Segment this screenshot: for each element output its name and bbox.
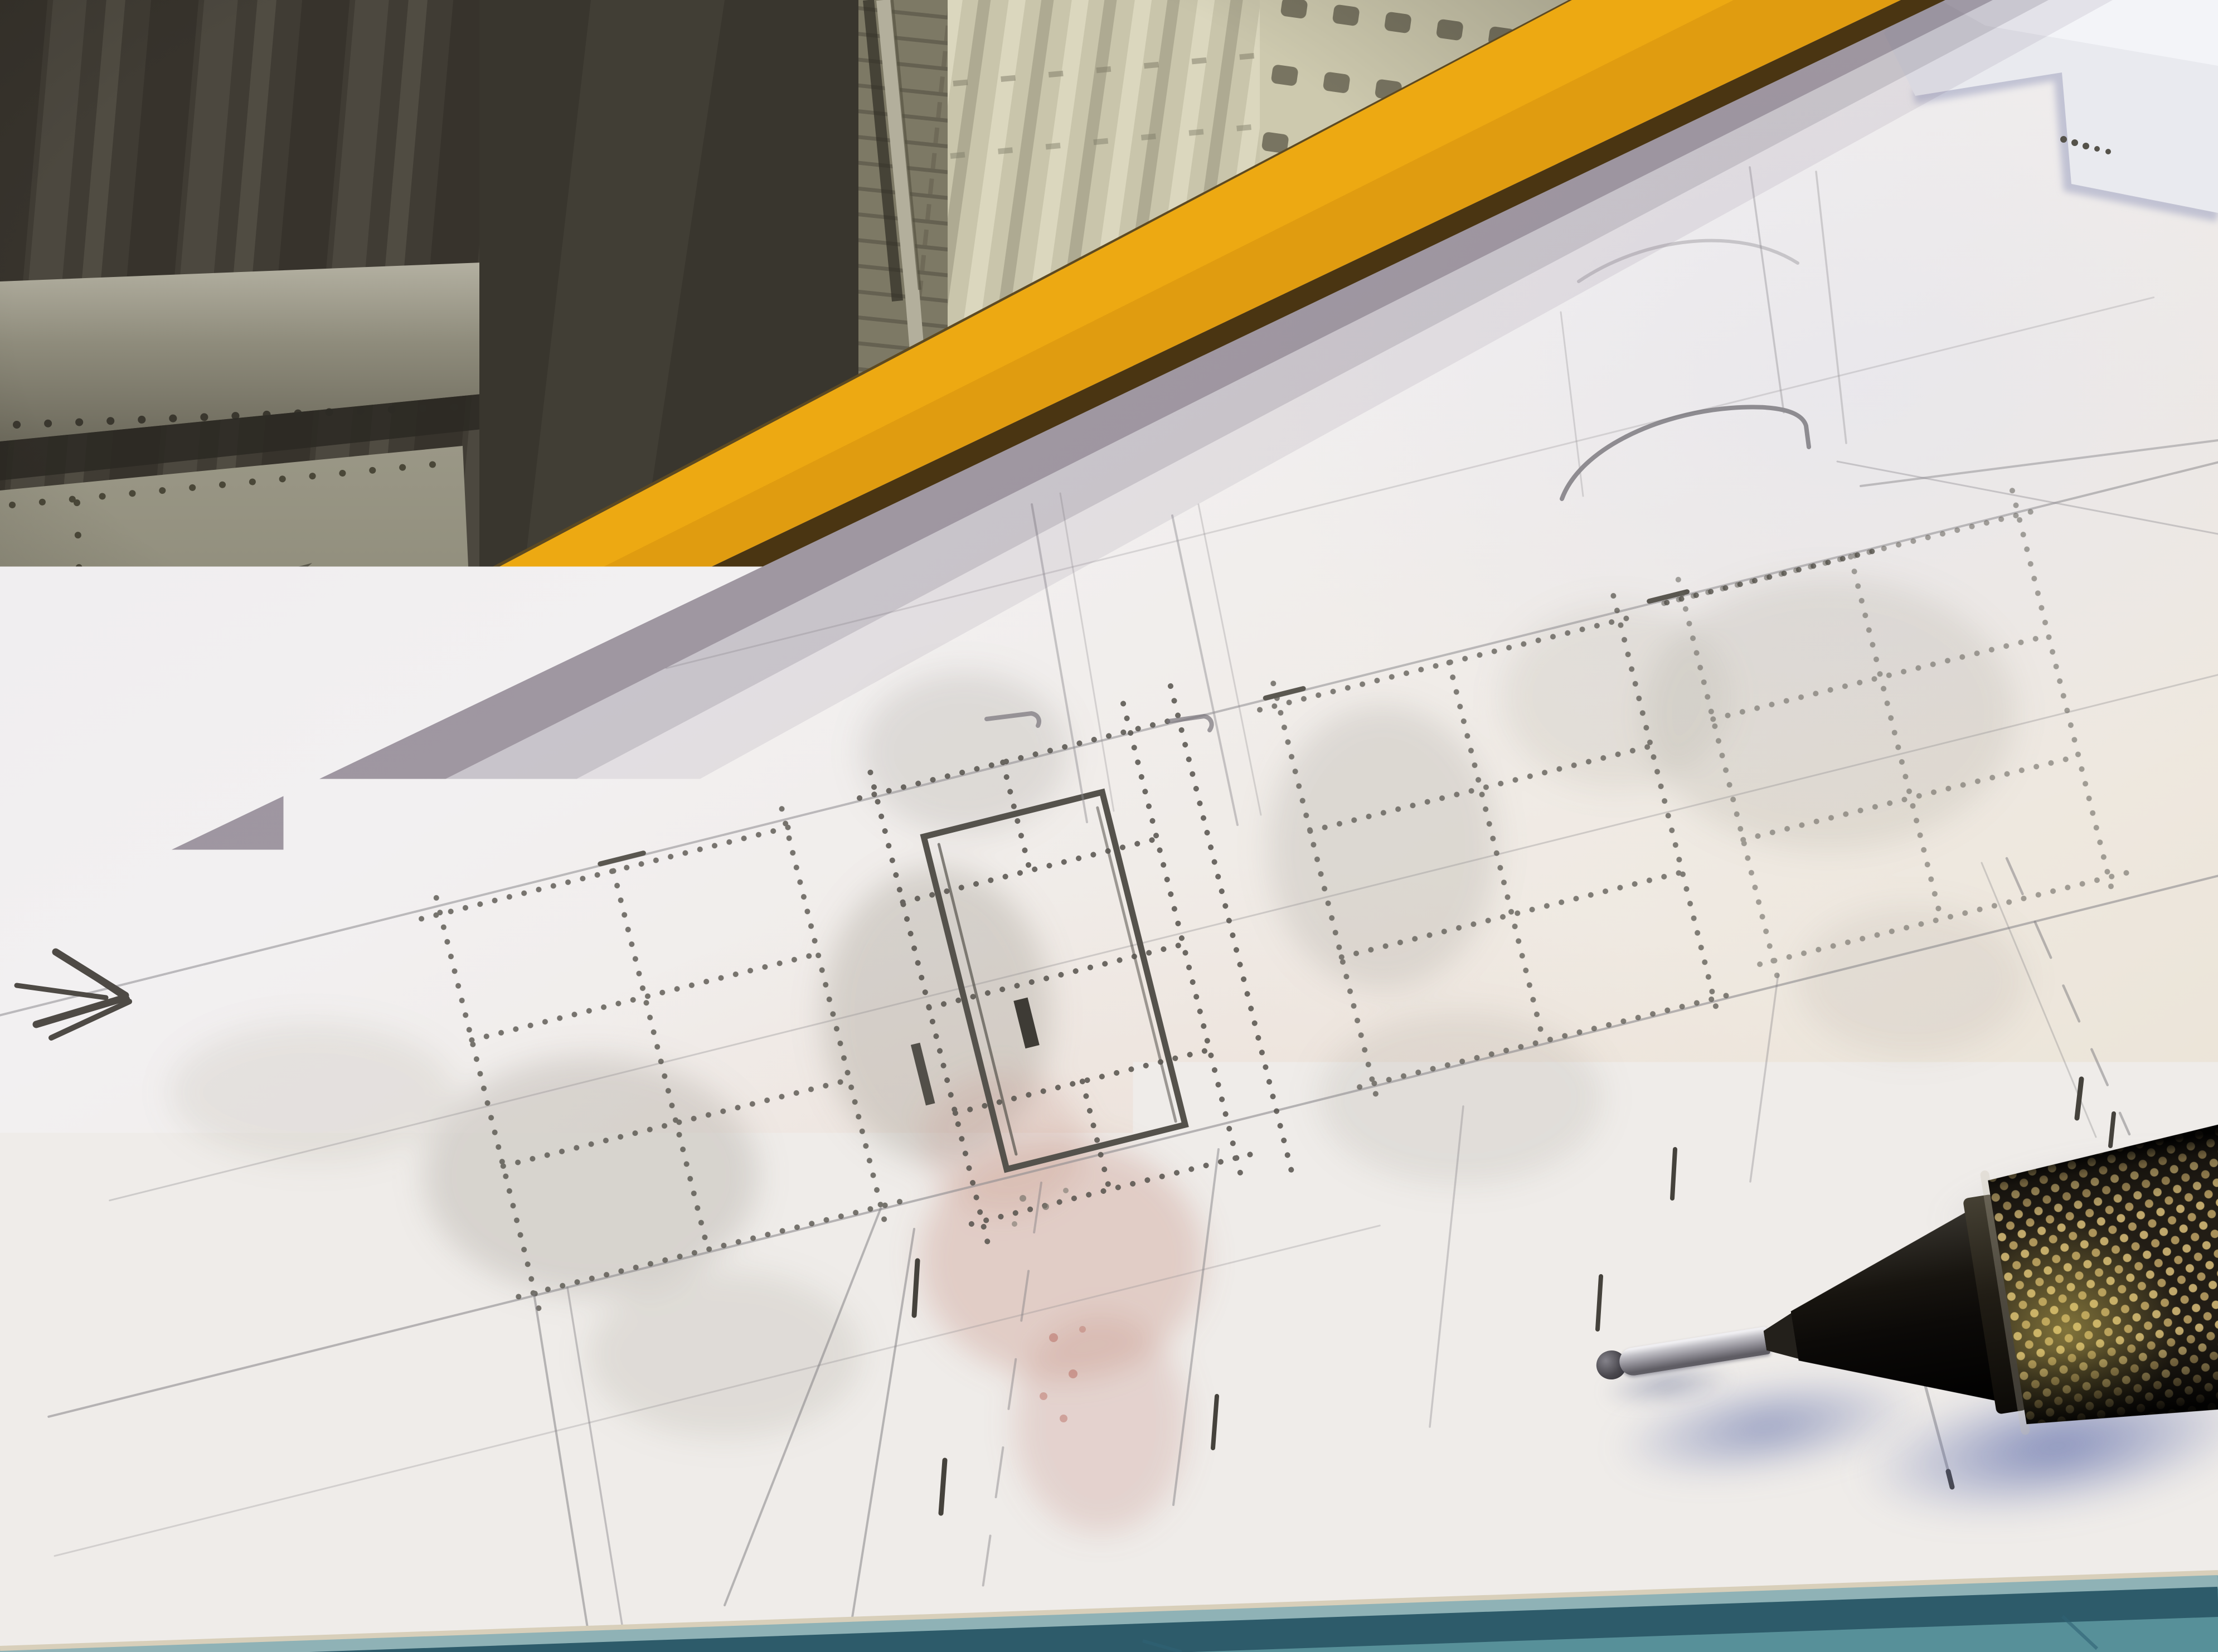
scene-canvas [0, 0, 2218, 1652]
photo-of-drafting-workspace [0, 0, 2218, 1652]
